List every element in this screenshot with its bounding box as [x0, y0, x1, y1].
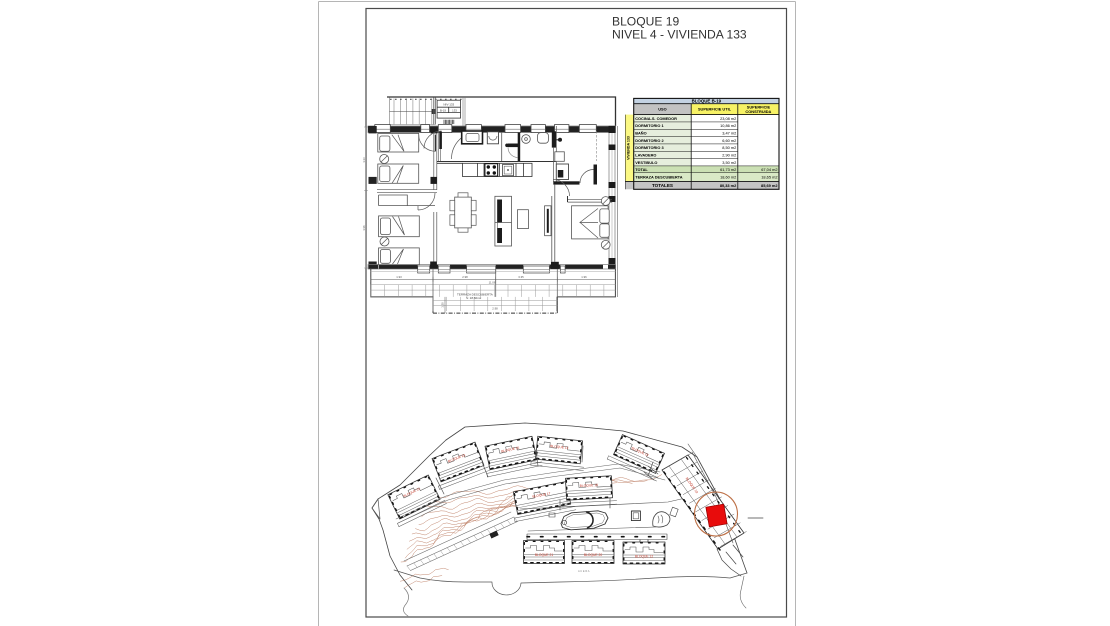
svg-text:BLOQUE 19: BLOQUE 19: [612, 15, 679, 29]
svg-text:TOTAL: TOTAL: [635, 167, 648, 172]
svg-text:2.98: 2.98: [492, 307, 498, 311]
svg-text:3,47 m2: 3,47 m2: [722, 131, 736, 136]
svg-text:DORMITORIO 3: DORMITORIO 3: [635, 145, 664, 150]
svg-text:3.33: 3.33: [362, 157, 366, 163]
svg-text:COCINA-S. COMEDOR: COCINA-S. COMEDOR: [635, 116, 677, 121]
svg-text:NIVEL 4 - VIVIENDA 133: NIVEL 4 - VIVIENDA 133: [612, 28, 747, 42]
svg-text:CONSTRUIDA: CONSTRUIDA: [745, 109, 771, 114]
svg-text:2.98: 2.98: [462, 275, 468, 279]
svg-text:6,60 m2: 6,60 m2: [722, 138, 736, 143]
svg-text:LAVADERO: LAVADERO: [635, 153, 656, 158]
svg-text:BLOQUE 12: BLOQUE 12: [635, 555, 653, 559]
svg-text:USO: USO: [658, 107, 666, 112]
svg-text:BAÑO: BAÑO: [635, 131, 646, 136]
svg-text:S: 18.60m2: S: 18.60m2: [466, 296, 482, 300]
svg-text:23,08 m2: 23,08 m2: [720, 116, 736, 121]
svg-text:11.08: 11.08: [489, 281, 496, 285]
svg-text:85,69 m2: 85,69 m2: [761, 183, 778, 188]
svg-text:3.35: 3.35: [518, 275, 524, 279]
svg-text:TERRAZA DESCUBIERTA: TERRAZA DESCUBIERTA: [635, 175, 683, 180]
svg-text:67,04 m2: 67,04 m2: [761, 167, 777, 172]
svg-text:1.96: 1.96: [581, 275, 587, 279]
svg-text:BLOQUE 20: BLOQUE 20: [584, 553, 602, 557]
svg-text:2,90 m2: 2,90 m2: [722, 153, 736, 158]
svg-text:BLOQUE 21: BLOQUE 21: [535, 553, 553, 557]
svg-text:80,33 m2: 80,33 m2: [720, 183, 737, 188]
svg-text:VIVIENDA 133: VIVIENDA 133: [627, 136, 631, 160]
svg-text:61,73 m2: 61,73 m2: [720, 167, 736, 172]
svg-text:TOTALES: TOTALES: [652, 183, 673, 188]
svg-text:NIV-133: NIV-133: [443, 103, 454, 107]
svg-text:1.30: 1.30: [441, 302, 445, 308]
svg-text:8,50 m2: 8,50 m2: [722, 145, 736, 150]
svg-text:SUPERFICIE UTIL: SUPERFICIE UTIL: [698, 107, 732, 112]
svg-text:1.93: 1.93: [396, 275, 402, 279]
svg-text:BLOQUE B-19: BLOQUE B-19: [692, 99, 722, 104]
svg-text:10,86 m2: 10,86 m2: [720, 123, 736, 128]
svg-text:3.96: 3.96: [362, 225, 366, 231]
svg-text:133: 133: [452, 108, 457, 112]
svg-text:18,65 m2: 18,65 m2: [761, 175, 777, 180]
svg-text:18,60 m2: 18,60 m2: [720, 175, 736, 180]
svg-text:DORMITORIO 2: DORMITORIO 2: [635, 138, 664, 143]
svg-text:DORMITORIO 1: DORMITORIO 1: [635, 123, 664, 128]
svg-text:A C E R A: A C E R A: [578, 569, 590, 573]
svg-text:3,50 m2: 3,50 m2: [722, 160, 736, 165]
svg-text:VESTIBULO: VESTIBULO: [635, 160, 657, 165]
svg-text:B-19: B-19: [440, 108, 446, 112]
